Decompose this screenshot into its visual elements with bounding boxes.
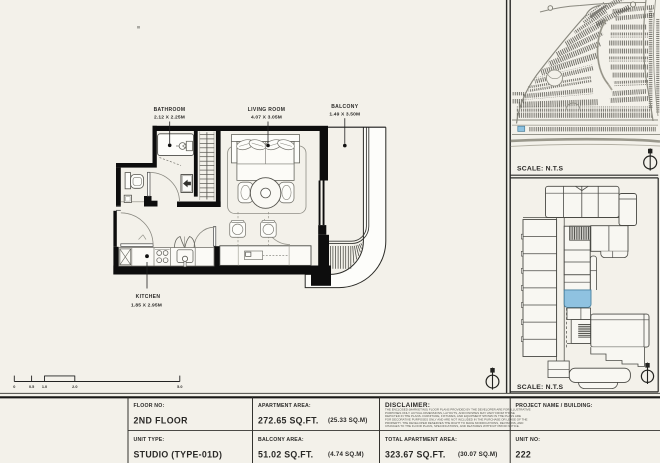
svg-text:51.02 SQ.FT.: 51.02 SQ.FT. [258,450,313,460]
svg-text:UNIT NO:: UNIT NO: [516,437,541,443]
svg-text:1.49 X 3.50M: 1.49 X 3.50M [329,111,360,117]
svg-text:1.85 X 2.95M: 1.85 X 2.95M [131,302,162,308]
svg-text:SCALE: N.T.S: SCALE: N.T.S [517,384,563,391]
svg-text:FLOOR NO:: FLOOR NO: [134,403,165,409]
svg-text:PROJECT NAME / BUILDING:: PROJECT NAME / BUILDING: [516,403,593,409]
svg-text:2.12 X 2.25M: 2.12 X 2.25M [154,115,185,121]
svg-text:TOTAL APARTMENT AREA:: TOTAL APARTMENT AREA: [385,437,457,443]
svg-text:0.5: 0.5 [29,385,34,389]
svg-text:SCALE: N.T.S: SCALE: N.T.S [517,166,563,173]
svg-text:1.0: 1.0 [42,385,47,389]
svg-text:(4.74 SQ.M): (4.74 SQ.M) [328,451,364,458]
svg-text:APARTMENT AREA:: APARTMENT AREA: [258,403,311,409]
svg-text:2ND FLOOR: 2ND FLOOR [134,416,189,426]
svg-text:323.67 SQ.FT.: 323.67 SQ.FT. [385,450,446,460]
svg-text:CHANGES TO THE FLOOR PLANS, SP: CHANGES TO THE FLOOR PLANS, SPECIFICATIO… [385,424,520,428]
svg-text:BATHROOM: BATHROOM [154,107,186,113]
svg-text:LIVING ROOM: LIVING ROOM [248,107,285,113]
svg-text:222: 222 [516,450,532,460]
svg-text:BALCONY: BALCONY [331,104,358,110]
svg-text:(30.07 SQ.M): (30.07 SQ.M) [458,451,498,458]
svg-text:BALCONY AREA:: BALCONY AREA: [258,437,304,443]
svg-text:KITCHEN: KITCHEN [136,294,161,300]
svg-text:4.07 X 3.05M: 4.07 X 3.05M [251,115,282,121]
svg-text:272.65 SQ.FT.: 272.65 SQ.FT. [258,416,319,426]
svg-text:(25.33 SQ.M): (25.33 SQ.M) [328,417,368,424]
svg-text:0: 0 [13,385,15,389]
svg-text:2.0: 2.0 [72,385,77,389]
svg-text:5.0: 5.0 [177,385,182,389]
svg-text:STUDIO (TYPE-01D): STUDIO (TYPE-01D) [134,450,223,460]
svg-text:UNIT TYPE:: UNIT TYPE: [134,437,165,443]
